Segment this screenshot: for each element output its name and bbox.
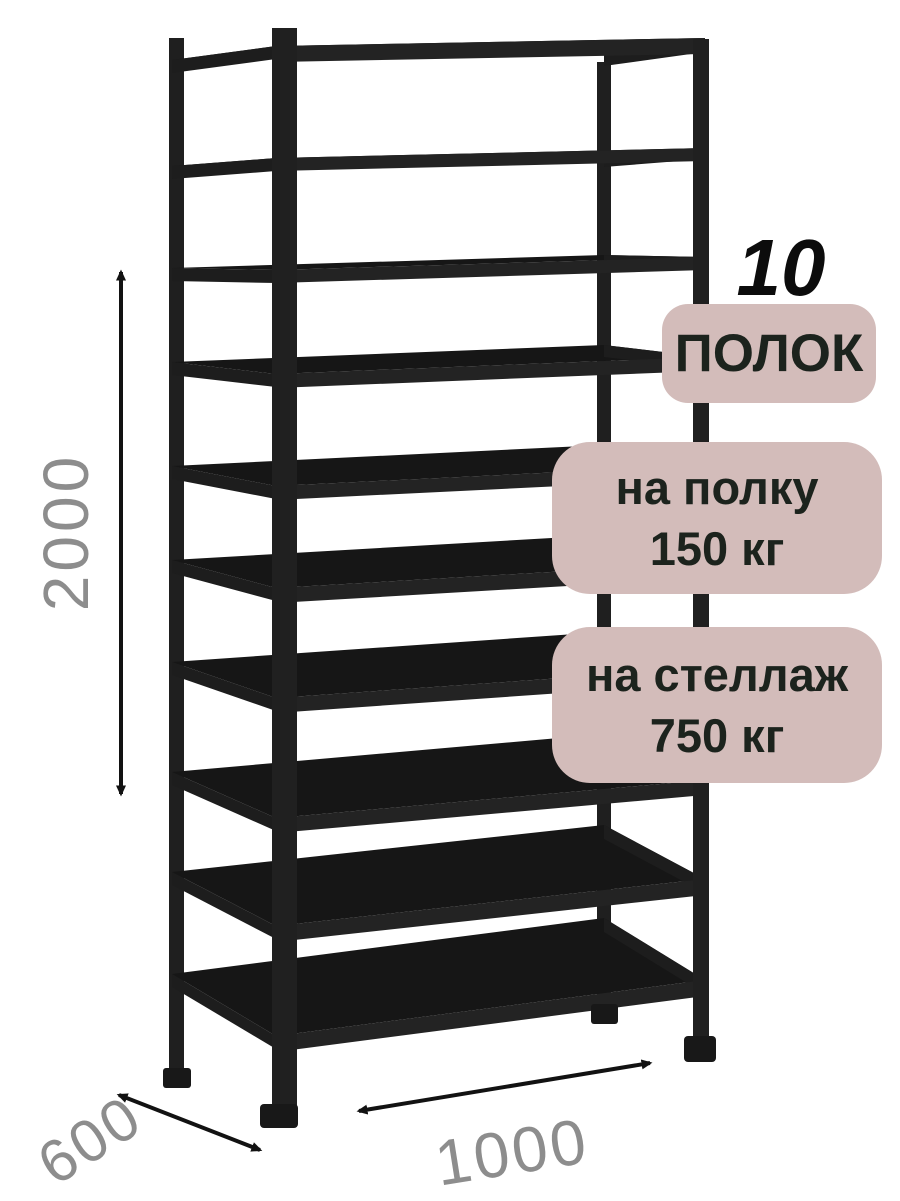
product-image: 2000 600 1000 10 ПОЛОК на полку 150 кг н… <box>0 0 900 1200</box>
shelf-part <box>172 46 276 73</box>
per-shelf-load-badge: на полку 150 кг <box>552 442 882 594</box>
per-rack-load-badge: на стеллаж 750 кг <box>552 627 882 783</box>
shelf-count-badge: ПОЛОК <box>662 304 876 403</box>
shelf-count-label: ПОЛОК <box>675 323 864 384</box>
per-rack-load-line2: 750 кг <box>650 705 785 766</box>
per-rack-load-line1: на стеллаж <box>586 644 848 705</box>
height-dimension-label: 2000 <box>29 453 103 611</box>
per-shelf-load-line2: 150 кг <box>650 518 785 579</box>
width-dimension-arrow <box>359 1063 650 1111</box>
shelf-part <box>172 268 276 283</box>
shelf-count-number: 10 <box>737 222 826 314</box>
shelf-part <box>276 148 705 171</box>
shelving-rack-illustration <box>0 0 900 1200</box>
shelf-part <box>172 158 276 179</box>
per-shelf-load-line1: на полку <box>615 457 818 518</box>
